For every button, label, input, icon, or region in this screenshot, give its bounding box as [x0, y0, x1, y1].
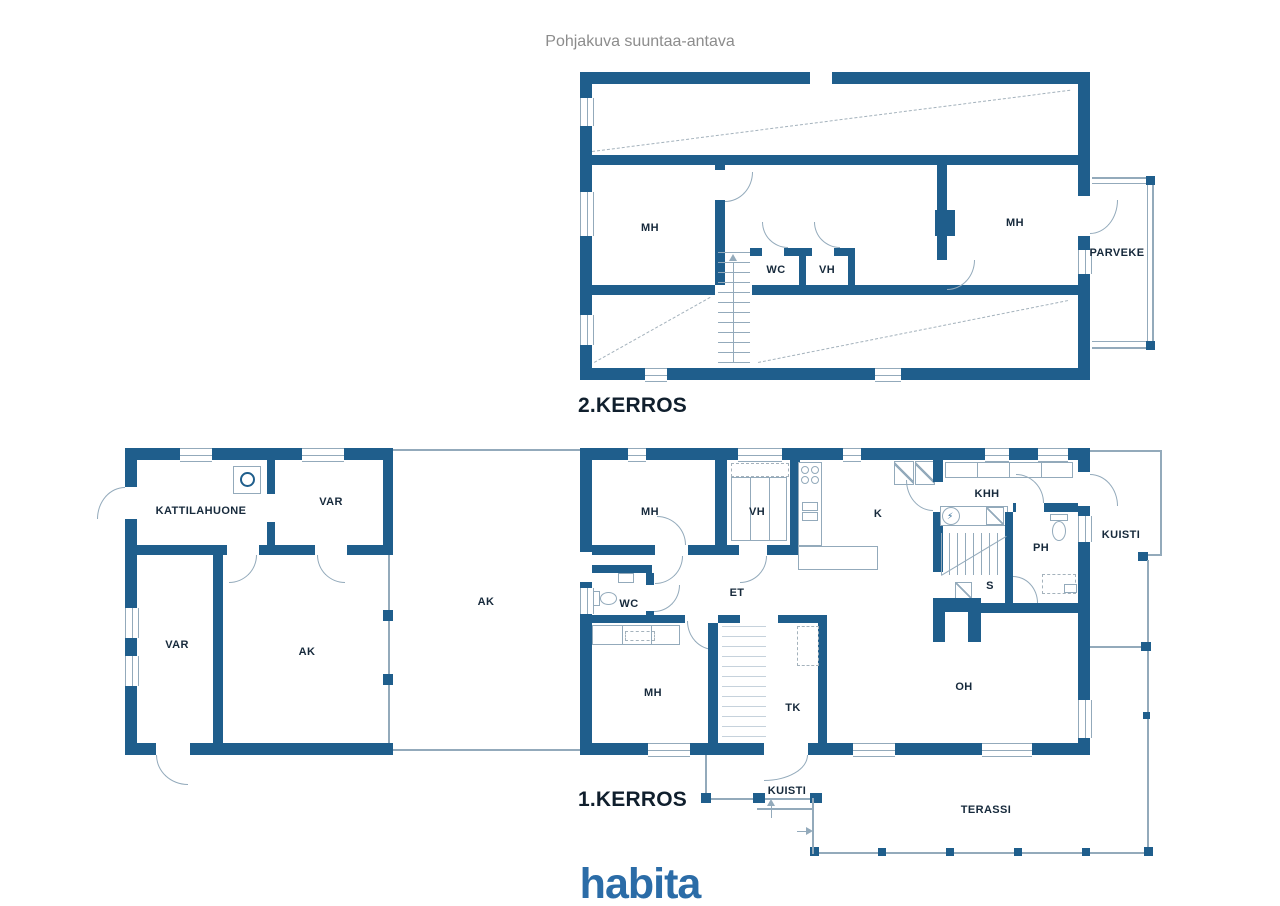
railing-post [1014, 848, 1022, 856]
ceiling-height-dashed-line [592, 90, 1070, 152]
door-arc [229, 555, 257, 583]
railing-post [1144, 847, 1153, 856]
balcony-post [1146, 341, 1155, 350]
wall [708, 623, 718, 743]
window [648, 743, 690, 757]
window [645, 368, 667, 382]
terrace-railing [1090, 646, 1146, 648]
kitchen-peninsula [798, 546, 878, 570]
stove-burner-icon [811, 476, 819, 484]
door-opening [715, 170, 725, 200]
porch-edge [1090, 450, 1162, 452]
window [853, 743, 895, 757]
wall [933, 460, 943, 482]
wall [1005, 512, 1013, 603]
balcony-edge [1092, 183, 1148, 184]
carport-edge [388, 555, 390, 743]
room-label-s: S [986, 580, 994, 592]
window [1078, 700, 1092, 738]
room-label-mh: MH [644, 687, 662, 699]
wall-opening [810, 72, 832, 84]
toilet-icon [1052, 521, 1066, 541]
room-label-wc: WC [766, 264, 785, 276]
toilet-tank-icon [1050, 514, 1068, 521]
wall [818, 623, 827, 743]
door-opening [764, 743, 808, 755]
railing-post [1082, 848, 1090, 856]
wall [848, 248, 855, 285]
wall [718, 615, 740, 623]
railing-post [1141, 642, 1151, 651]
step-right-arrow-icon [806, 827, 813, 835]
cabinet-dashed [797, 626, 819, 666]
lightning-icon: ⚡ [947, 512, 953, 521]
door-arc [657, 516, 686, 545]
door-arc [1090, 474, 1118, 506]
stove-burner-icon [801, 476, 809, 484]
stairs [718, 252, 750, 368]
door-opening [812, 248, 834, 256]
room-label-var: VAR [165, 639, 189, 651]
door-opening [125, 487, 137, 519]
stairs-above-dashed [722, 626, 766, 740]
window [1078, 516, 1092, 542]
door-arc [1090, 200, 1118, 234]
wall [592, 155, 1078, 165]
railing-post [878, 848, 886, 856]
chimney-block [935, 210, 955, 236]
stairs-up-arrow-icon [729, 254, 737, 261]
door-arc [764, 755, 808, 781]
floor2-name: 2.KERROS [578, 394, 687, 418]
wall [213, 555, 223, 743]
door-arc [1016, 474, 1044, 503]
wall [592, 285, 715, 295]
door-arc [156, 755, 188, 785]
room-label-oh: OH [955, 681, 972, 693]
wall [580, 72, 1090, 84]
door-arc [655, 556, 683, 584]
counter-divider [1009, 462, 1010, 478]
door-opening [267, 494, 275, 522]
wardrobe-divider [769, 477, 770, 541]
balcony-post [1146, 176, 1155, 185]
window [628, 448, 646, 462]
door-arc [97, 487, 125, 519]
fireplace-opening [945, 612, 968, 642]
sink-icon [802, 502, 818, 511]
door-arc [762, 222, 788, 248]
stairs-direction-line [733, 262, 734, 362]
porch-post [701, 793, 711, 803]
wardrobe-divider [622, 625, 623, 645]
window [985, 448, 1009, 462]
balcony-edge [1092, 347, 1154, 349]
wall [383, 448, 393, 555]
room-label-ak: AK [478, 596, 495, 608]
window [843, 448, 861, 462]
room-label-mh: MH [641, 222, 659, 234]
wall [137, 545, 393, 555]
wall [580, 448, 1090, 460]
sink-icon [802, 512, 818, 521]
window [125, 656, 139, 686]
door-opening [315, 545, 347, 555]
sauna-stove-icon [955, 582, 972, 599]
door-arc [317, 555, 345, 583]
step-edge [812, 798, 814, 854]
window [125, 608, 139, 638]
stove-burner-icon [811, 466, 819, 474]
room-label-kuisti: KUISTI [768, 785, 806, 797]
room-label-mh: MH [1006, 217, 1024, 229]
carport-post [383, 674, 393, 685]
door-opening [1016, 503, 1044, 512]
railing-post [1143, 712, 1150, 719]
carport-roof-edge [393, 749, 580, 751]
counter-divider [977, 462, 978, 478]
room-label-k: K [874, 508, 882, 520]
step-up-arrow-icon [767, 799, 775, 806]
porch-post [753, 793, 765, 803]
wall [799, 248, 806, 285]
railing-post [946, 848, 954, 856]
entry-door-opening [580, 552, 592, 582]
balcony-edge [1092, 341, 1148, 342]
step-edge [757, 808, 812, 810]
room-label-wc: WC [619, 598, 638, 610]
wall [592, 565, 652, 573]
closet-dashed [625, 631, 655, 641]
balcony-door-opening [1078, 196, 1090, 236]
sink-icon [1064, 584, 1077, 593]
window [580, 588, 594, 614]
room-label-kuisti: KUISTI [1102, 529, 1140, 541]
door-opening [739, 545, 767, 555]
window [1038, 448, 1068, 462]
room-label-terassi: TERASSI [961, 804, 1011, 816]
balcony-edge [1147, 183, 1148, 343]
room-label-tk: TK [785, 702, 800, 714]
door-arc [906, 480, 933, 511]
door-opening [156, 743, 190, 755]
window [982, 743, 1032, 757]
door-opening [655, 545, 688, 555]
window [580, 315, 594, 345]
counter-divider [1041, 462, 1042, 478]
wall [778, 615, 827, 623]
balcony-edge [1152, 177, 1154, 349]
door-arc [1013, 576, 1038, 603]
habita-logo: habita [0, 860, 1280, 906]
window [875, 368, 901, 382]
wall [592, 615, 685, 623]
door-opening [1078, 472, 1090, 506]
carport-post [383, 610, 393, 621]
window [738, 448, 782, 462]
room-label-et: ET [730, 587, 745, 599]
door-arc [654, 585, 680, 612]
wall [752, 285, 1078, 295]
toilet-icon [600, 592, 617, 605]
room-label-var: VAR [319, 496, 343, 508]
carport-roof-edge [393, 449, 580, 451]
terrace-railing [1147, 560, 1149, 854]
toilet-tank-icon [593, 591, 600, 606]
door-opening [227, 545, 259, 555]
closet-dashed [731, 463, 789, 477]
terrace-railing [812, 852, 1150, 854]
window [580, 192, 594, 236]
balcony-edge [1092, 177, 1154, 179]
ceiling-height-dashed-line [594, 297, 710, 363]
room-label-ak: AK [299, 646, 316, 658]
sink-icon [618, 573, 634, 583]
door-opening [646, 585, 654, 611]
page-title: Pohjakuva suuntaa-antava [0, 33, 1280, 51]
stove-burner-icon [801, 466, 809, 474]
wall [715, 460, 727, 555]
dryer-icon [986, 507, 1004, 525]
ceiling-height-dashed-line [758, 300, 1068, 363]
step-arrow-line [771, 804, 772, 818]
door-arc [740, 556, 767, 583]
room-label-khh: KHH [974, 488, 999, 500]
door-arc [814, 222, 840, 248]
window [180, 448, 212, 462]
door-arc [725, 172, 753, 202]
wall [125, 448, 393, 460]
room-label-kattilahuone: KATTILAHUONE [156, 505, 247, 517]
room-label-vh: VH [819, 264, 835, 276]
room-label-ph: PH [1033, 542, 1049, 554]
room-label-vh: VH [749, 506, 765, 518]
room-label-parveke: PARVEKE [1090, 247, 1145, 259]
porch-edge [1160, 450, 1162, 556]
window [580, 98, 594, 126]
floorplan-page: Pohjakuva suuntaa-antava [0, 0, 1280, 906]
room-label-mh: MH [641, 506, 659, 518]
boiler-circle-icon [240, 472, 255, 487]
door-opening [762, 248, 784, 256]
window [302, 448, 344, 462]
floor1-name: 1.KERROS [578, 788, 687, 812]
